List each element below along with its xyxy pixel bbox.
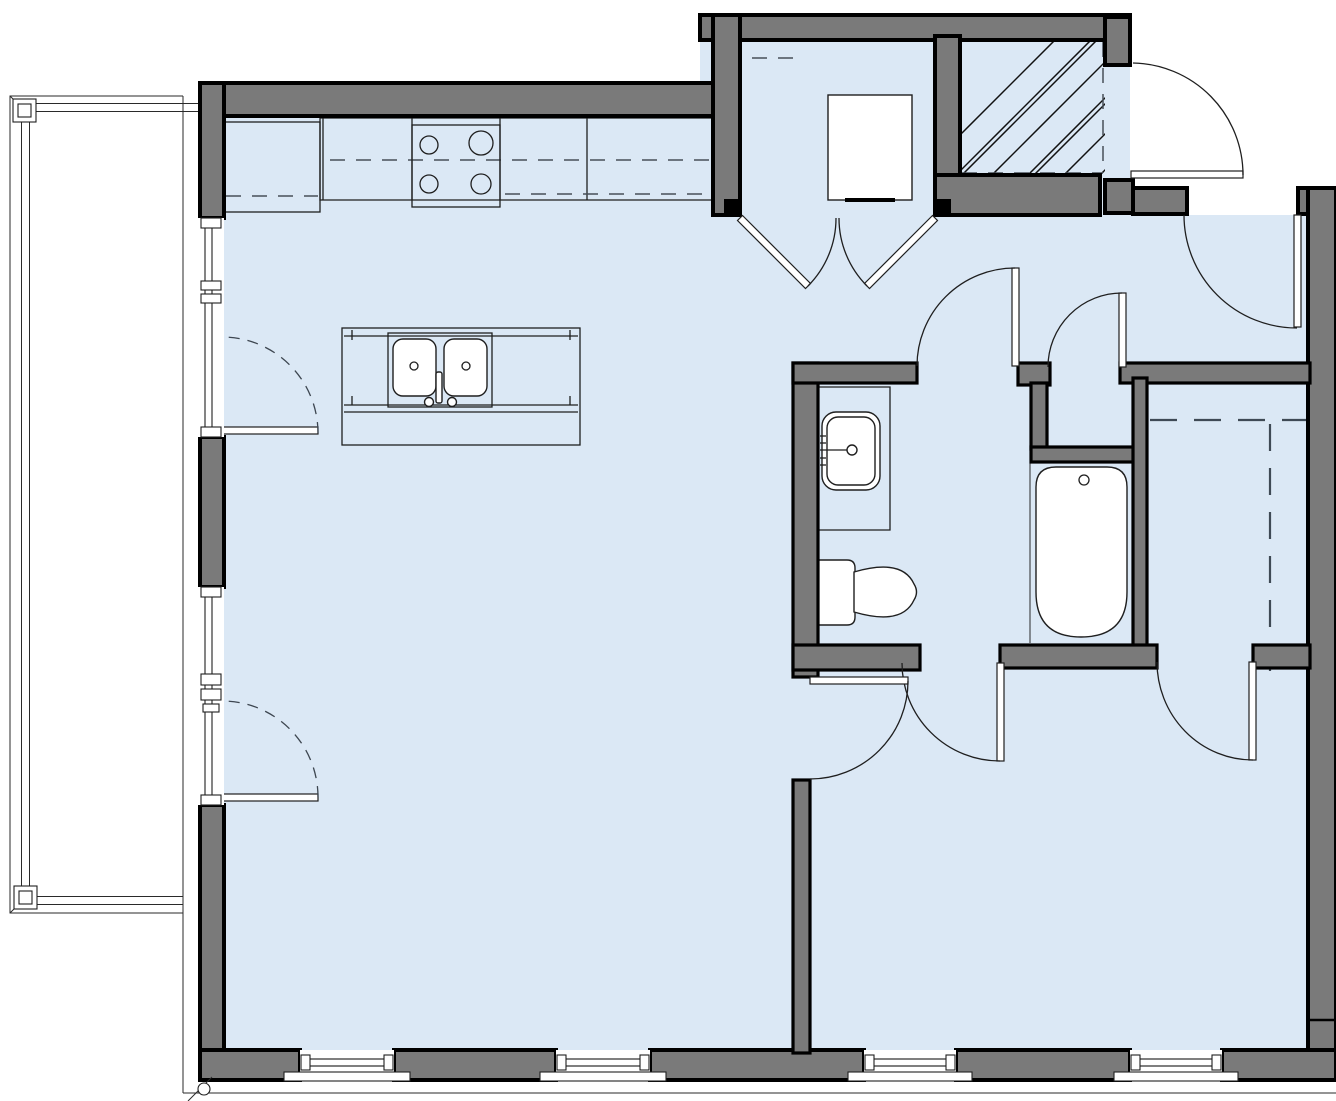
wall-entry-left bbox=[1133, 188, 1187, 214]
wall-utility-top bbox=[700, 15, 1130, 40]
wall-right bbox=[1308, 188, 1336, 1080]
wall-shaft-bottom bbox=[935, 175, 1100, 215]
wall-bottom bbox=[1222, 1050, 1336, 1080]
wall-bottom bbox=[394, 1050, 556, 1080]
window-bottom-2 bbox=[540, 1050, 666, 1081]
wall-kitchen-top bbox=[200, 83, 715, 116]
wall-left-pier bbox=[200, 83, 224, 218]
wall-tub-closet-divider bbox=[1133, 378, 1147, 660]
wall-closet-bottom-stub bbox=[1253, 645, 1310, 668]
wall-bathroom-top bbox=[793, 363, 917, 383]
wall-entry-stub bbox=[1105, 180, 1133, 213]
corridor-area bbox=[1130, 0, 1336, 215]
wall-bathroom-bottom bbox=[793, 645, 920, 670]
wall-bottom bbox=[650, 1050, 864, 1080]
window-sill bbox=[1114, 1072, 1238, 1081]
floor-plan-canvas bbox=[0, 0, 1336, 1101]
wall-bedroom-top bbox=[1000, 645, 1157, 668]
floor-area bbox=[200, 0, 1336, 1080]
wall-bathroom-left bbox=[793, 363, 818, 677]
corner-column-circle bbox=[198, 1083, 210, 1095]
wall-left-pier bbox=[200, 437, 224, 587]
window-bottom-4 bbox=[1114, 1050, 1238, 1081]
appliance-square bbox=[828, 95, 912, 200]
wall-bottom bbox=[956, 1050, 1130, 1080]
window-sill bbox=[540, 1072, 666, 1081]
wall-utility-left bbox=[713, 15, 740, 215]
window-left-lower bbox=[198, 587, 224, 805]
faucet bbox=[436, 372, 442, 403]
wall-shaft-right-stub bbox=[1105, 17, 1130, 65]
window-sill bbox=[848, 1072, 972, 1081]
wall-linen-side bbox=[1031, 383, 1047, 449]
wall-tub-top bbox=[1031, 447, 1137, 462]
window-bottom-3 bbox=[848, 1050, 972, 1081]
window-sill bbox=[284, 1072, 410, 1081]
balcony bbox=[10, 96, 200, 1093]
wall-left-pier bbox=[200, 805, 224, 1080]
floor-plan-page bbox=[0, 0, 1336, 1101]
window-bottom-1 bbox=[284, 1050, 410, 1081]
window-left-upper bbox=[198, 218, 224, 437]
bathtub bbox=[1030, 462, 1127, 643]
wall-bedroom-west bbox=[793, 780, 810, 1053]
